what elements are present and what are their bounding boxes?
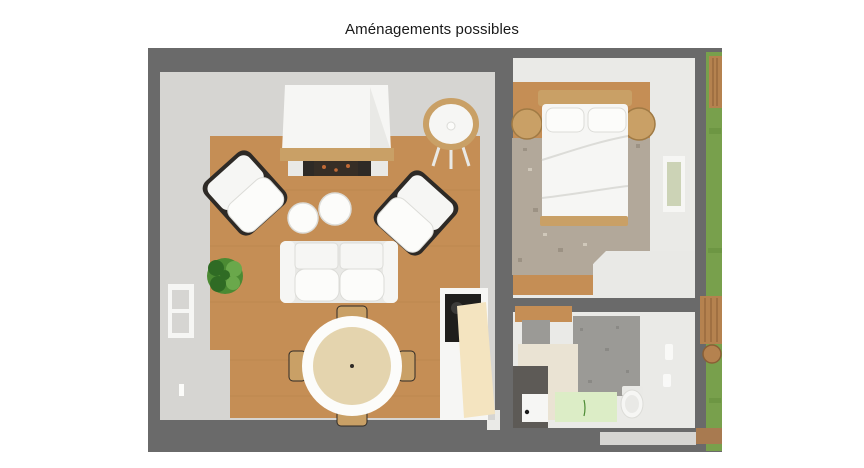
fireplace-post-left (303, 161, 314, 176)
cradle-ornament (447, 122, 455, 130)
fireplace-mantel (280, 148, 394, 161)
table-center-mark (350, 364, 354, 368)
kitchenette (440, 288, 495, 420)
bedroom-window (663, 156, 685, 212)
pouf-left (288, 203, 318, 233)
door-handle-dot (525, 410, 529, 414)
bed-pillow-left (546, 108, 584, 132)
bathroom-gray-wall-left (522, 320, 550, 346)
tree-stump (703, 345, 721, 363)
sofa-armrest-right (383, 241, 398, 303)
toilet-seat (625, 395, 639, 413)
document-page: Aménagements possibles (0, 0, 864, 468)
wood-fence-top (709, 56, 722, 108)
fireplace (280, 85, 394, 176)
sofa-back-pillow-right (340, 269, 384, 301)
bedroom (512, 58, 695, 298)
bathroom-door (522, 394, 548, 422)
two-seat-sofa (280, 241, 398, 303)
dirt-path (696, 428, 722, 444)
pouf-right (319, 193, 351, 225)
double-bed (538, 90, 632, 226)
toilet (621, 386, 643, 418)
bottom-wall-face (600, 432, 696, 445)
sofa-back-pillow-left (295, 269, 339, 301)
bed-pillow-right (588, 108, 626, 132)
sofa-seat-left (295, 243, 338, 269)
bathroom-gray-wall (573, 316, 640, 396)
nightstand-left (512, 109, 542, 139)
bathroom-green-floor (555, 392, 617, 422)
bedroom-dresser (593, 251, 695, 298)
floor-plan-figure (148, 48, 722, 452)
window-pane (667, 162, 681, 206)
left-wall-window (168, 284, 194, 338)
sofa-armrest-left (280, 241, 295, 303)
bed-footboard (540, 216, 628, 226)
living-room (160, 72, 495, 426)
bathroom-wood-sliver (515, 306, 572, 322)
page-title: Aménagements possibles (0, 21, 864, 38)
bed-headboard (538, 90, 632, 106)
sofa-seat-right (340, 243, 383, 269)
potted-plant (207, 258, 243, 294)
bathroom (513, 306, 695, 428)
left-door-mark (179, 384, 184, 396)
fireplace-post-right (358, 161, 371, 176)
